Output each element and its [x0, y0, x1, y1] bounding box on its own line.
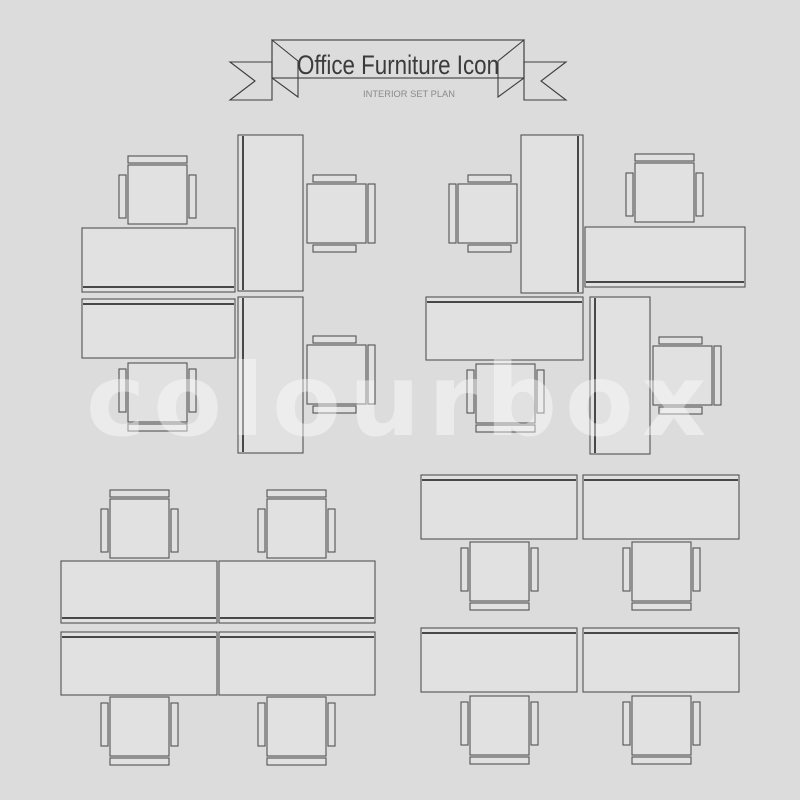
- chair-armrest: [467, 370, 474, 413]
- desk-top: [421, 628, 577, 692]
- desk-top: [426, 297, 583, 360]
- chair: [623, 696, 700, 764]
- chair-armrest: [461, 702, 468, 745]
- desk: [61, 632, 217, 695]
- desk: [219, 561, 375, 623]
- chair-armrest: [659, 337, 702, 344]
- desk-top: [61, 561, 217, 623]
- chair-seat: [267, 499, 326, 558]
- chair-seat: [653, 346, 712, 405]
- chair-backrest: [632, 603, 691, 610]
- chair-seat: [635, 163, 694, 222]
- desk-top: [583, 475, 739, 539]
- chair-armrest: [258, 509, 265, 552]
- chair-armrest: [696, 173, 703, 216]
- desk: [238, 135, 303, 291]
- desk-top: [61, 632, 217, 695]
- desk: [426, 297, 583, 360]
- desk: [583, 628, 739, 692]
- chair-backrest: [476, 425, 535, 432]
- chair-armrest: [101, 703, 108, 746]
- chair-backrest: [368, 345, 375, 404]
- chair-armrest: [189, 175, 196, 218]
- ribbon-fold-right-icon: [498, 40, 524, 97]
- chair-backrest: [635, 154, 694, 161]
- ribbon-tail-left-icon: [230, 62, 272, 100]
- chair-seat: [267, 697, 326, 756]
- chair: [258, 490, 335, 558]
- desk: [421, 628, 577, 692]
- chair-backrest: [110, 758, 169, 765]
- desk: [82, 228, 235, 292]
- chair-armrest: [328, 703, 335, 746]
- chair: [101, 490, 178, 558]
- desk-top: [521, 135, 583, 293]
- chair: [449, 175, 517, 252]
- chair-seat: [110, 499, 169, 558]
- chair: [653, 337, 721, 414]
- chair-seat: [632, 696, 691, 755]
- chair-backrest: [449, 184, 456, 243]
- chair-armrest: [313, 336, 356, 343]
- chair-armrest: [531, 702, 538, 745]
- furniture-plan-svg: [0, 0, 800, 800]
- chair-armrest: [328, 509, 335, 552]
- chair-armrest: [189, 369, 196, 412]
- ribbon-tail-right-icon: [524, 62, 566, 100]
- chair-armrest: [693, 548, 700, 591]
- chair-armrest: [101, 509, 108, 552]
- furniture-group-top-right-pinwheel: [426, 135, 745, 454]
- chair-armrest: [171, 703, 178, 746]
- chair-backrest: [110, 490, 169, 497]
- desk: [82, 299, 235, 358]
- desk-top: [219, 632, 375, 695]
- chair-armrest: [258, 703, 265, 746]
- furniture-group-top-left-pinwheel: [82, 135, 375, 453]
- chair: [461, 696, 538, 764]
- chair-seat: [307, 184, 366, 243]
- chair-seat: [128, 363, 187, 422]
- chair-seat: [632, 542, 691, 601]
- chair-backrest: [470, 757, 529, 764]
- chair-armrest: [531, 548, 538, 591]
- desk-top: [583, 628, 739, 692]
- chair-backrest: [470, 603, 529, 610]
- desk-top: [238, 135, 303, 291]
- chair-backrest: [632, 757, 691, 764]
- chair: [307, 336, 375, 413]
- chair: [101, 697, 178, 765]
- chair-armrest: [119, 369, 126, 412]
- chair: [307, 175, 375, 252]
- desk: [421, 475, 577, 539]
- desk-top: [219, 561, 375, 623]
- desk-top: [585, 227, 745, 287]
- chair-seat: [458, 184, 517, 243]
- desk-top: [82, 299, 235, 358]
- chair-armrest: [626, 173, 633, 216]
- chair-armrest: [623, 702, 630, 745]
- furniture-group-bottom-left-grid: [61, 490, 375, 765]
- chair-seat: [476, 364, 535, 423]
- chair: [119, 156, 196, 224]
- office-furniture-plan: Office Furniture Icon INTERIOR SET PLAN …: [0, 0, 800, 800]
- desk: [585, 227, 745, 287]
- chair-armrest: [468, 245, 511, 252]
- desk: [590, 297, 650, 454]
- chair-backrest: [714, 346, 721, 405]
- chair-backrest: [128, 424, 187, 431]
- chair: [258, 697, 335, 765]
- desk-top: [82, 228, 235, 292]
- chair-armrest: [313, 245, 356, 252]
- desk: [238, 297, 303, 453]
- desk-top: [590, 297, 650, 454]
- banner-title: Office Furniture Icon: [297, 50, 499, 80]
- chair: [467, 364, 544, 432]
- chair-seat: [470, 542, 529, 601]
- ribbon-banner: Office Furniture Icon INTERIOR SET PLAN: [0, 0, 800, 120]
- desk: [583, 475, 739, 539]
- chair-seat: [470, 696, 529, 755]
- desk: [219, 632, 375, 695]
- banner-subtitle: INTERIOR SET PLAN: [363, 89, 455, 100]
- desk: [61, 561, 217, 623]
- chair: [461, 542, 538, 610]
- chair-armrest: [461, 548, 468, 591]
- chair-armrest: [313, 175, 356, 182]
- chair-armrest: [693, 702, 700, 745]
- desk: [521, 135, 583, 293]
- desk-top: [238, 297, 303, 453]
- furniture-group-bottom-right-grid: [421, 475, 739, 764]
- chair-backrest: [267, 490, 326, 497]
- desk-top: [421, 475, 577, 539]
- chair-armrest: [623, 548, 630, 591]
- chair-armrest: [119, 175, 126, 218]
- chair-armrest: [313, 406, 356, 413]
- chair: [119, 363, 196, 431]
- chair-armrest: [659, 407, 702, 414]
- chair-backrest: [267, 758, 326, 765]
- chair-seat: [307, 345, 366, 404]
- chair-seat: [128, 165, 187, 224]
- chair: [626, 154, 703, 222]
- chair-armrest: [171, 509, 178, 552]
- chair: [623, 542, 700, 610]
- chair-seat: [110, 697, 169, 756]
- chair-backrest: [368, 184, 375, 243]
- chair-backrest: [128, 156, 187, 163]
- chair-armrest: [537, 370, 544, 413]
- chair-armrest: [468, 175, 511, 182]
- ribbon-fold-left-icon: [272, 40, 298, 97]
